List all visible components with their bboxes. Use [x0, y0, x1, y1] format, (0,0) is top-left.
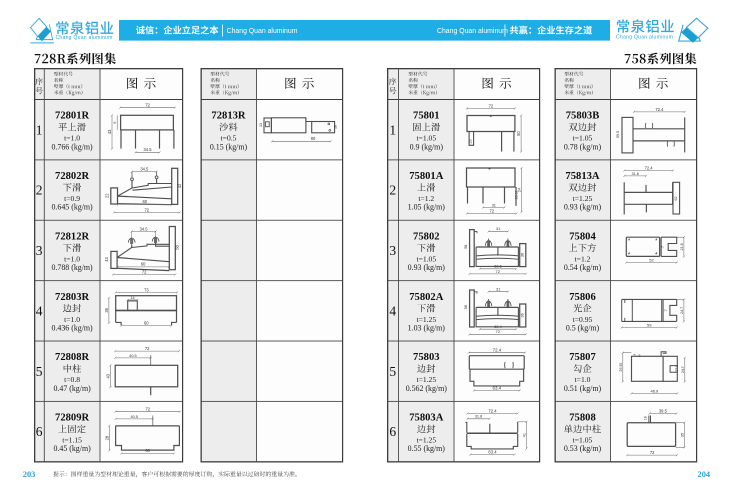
- svg-text:34.5: 34.5: [144, 147, 153, 152]
- svg-text:0.788 (kg/m): 0.788 (kg/m): [51, 263, 93, 272]
- svg-text:59: 59: [647, 322, 652, 327]
- svg-text:0.93 (kg/m): 0.93 (kg/m): [408, 263, 446, 272]
- svg-text:4: 4: [36, 303, 43, 318]
- svg-text:1.05 (kg/m): 1.05 (kg/m): [408, 203, 446, 212]
- svg-text:46.9: 46.9: [651, 388, 660, 393]
- svg-text:75808: 75808: [569, 413, 595, 424]
- svg-text:3: 3: [36, 243, 43, 258]
- svg-text:23.02: 23.02: [514, 191, 518, 200]
- svg-text:203: 203: [23, 470, 36, 479]
- svg-text:60: 60: [141, 262, 146, 267]
- svg-text:0.51 (kg/m): 0.51 (kg/m): [564, 384, 602, 393]
- svg-text:43: 43: [105, 373, 110, 378]
- svg-text:60: 60: [143, 199, 148, 204]
- svg-text:43: 43: [104, 257, 109, 262]
- svg-text:21.8: 21.8: [680, 243, 684, 250]
- svg-text:60: 60: [144, 320, 149, 325]
- svg-text:1: 1: [389, 122, 396, 137]
- svg-text:18: 18: [334, 125, 338, 129]
- svg-text:0.436 (kg/m): 0.436 (kg/m): [51, 323, 93, 332]
- svg-text:24.7: 24.7: [680, 307, 684, 314]
- svg-text:Chang Quan aluminum: Chang Quan aluminum: [56, 35, 113, 41]
- svg-text:13: 13: [259, 123, 263, 127]
- svg-text:72812R: 72812R: [55, 232, 89, 243]
- svg-text:29.35: 29.35: [619, 363, 623, 372]
- svg-text:60: 60: [145, 448, 150, 453]
- svg-text:63.4: 63.4: [488, 450, 497, 455]
- svg-text:42: 42: [177, 183, 182, 188]
- svg-text:36: 36: [521, 313, 525, 317]
- svg-text:0.645 (kg/m): 0.645 (kg/m): [51, 203, 93, 212]
- svg-text:72.4: 72.4: [493, 348, 502, 353]
- svg-text:14: 14: [130, 296, 134, 300]
- svg-text:75801: 75801: [413, 111, 439, 122]
- svg-text:72.4: 72.4: [655, 107, 664, 112]
- svg-text:80: 80: [311, 136, 316, 141]
- svg-text:75803B: 75803B: [566, 111, 600, 122]
- svg-text:7: 7: [661, 246, 665, 248]
- svg-text:72809R: 72809R: [55, 413, 89, 424]
- svg-text:72: 72: [490, 208, 495, 213]
- svg-text:58: 58: [464, 305, 468, 309]
- svg-text:0.54 (kg/m): 0.54 (kg/m): [564, 263, 602, 272]
- svg-text:63.4: 63.4: [493, 385, 502, 390]
- svg-text:2: 2: [389, 183, 396, 198]
- svg-text:72: 72: [496, 269, 500, 274]
- svg-text:75804: 75804: [569, 232, 596, 243]
- svg-text:34.5: 34.5: [140, 167, 149, 172]
- svg-text:31: 31: [496, 287, 500, 292]
- svg-text:34.5: 34.5: [140, 226, 149, 231]
- svg-text:0.93 (kg/m): 0.93 (kg/m): [564, 203, 602, 212]
- svg-text:72: 72: [145, 207, 150, 212]
- svg-text:62: 62: [674, 197, 678, 201]
- svg-text:40.5: 40.5: [131, 415, 138, 419]
- svg-text:2: 2: [36, 183, 43, 198]
- svg-text:72: 72: [650, 450, 655, 455]
- svg-text:31: 31: [492, 202, 496, 207]
- svg-text:6: 6: [36, 424, 43, 439]
- svg-text:5: 5: [634, 354, 636, 358]
- svg-text:72803R: 72803R: [55, 292, 89, 303]
- svg-text:204: 204: [698, 470, 711, 479]
- svg-text:75803: 75803: [413, 352, 439, 363]
- svg-text:36: 36: [104, 307, 109, 312]
- svg-text:0.45 (kg/m): 0.45 (kg/m): [53, 444, 91, 453]
- svg-text:72.4: 72.4: [488, 408, 497, 413]
- svg-text:75801A: 75801A: [409, 171, 443, 182]
- svg-text:Chang Quan aluminum: Chang Quan aluminum: [437, 28, 508, 35]
- svg-text:6: 6: [113, 122, 117, 124]
- svg-text:75802A: 75802A: [409, 292, 443, 303]
- svg-text:31.8: 31.8: [632, 172, 639, 176]
- svg-text:35: 35: [680, 433, 684, 437]
- svg-text:1.03 (kg/m): 1.03 (kg/m): [408, 323, 446, 332]
- svg-text:72: 72: [145, 346, 150, 351]
- svg-text:7: 7: [664, 309, 668, 311]
- svg-text:72808R: 72808R: [55, 352, 89, 363]
- svg-text:28: 28: [104, 435, 109, 440]
- svg-text:31.8: 31.8: [475, 415, 482, 419]
- svg-text:Chang Quan aluminum: Chang Quan aluminum: [616, 34, 673, 40]
- svg-text:58: 58: [464, 245, 468, 249]
- svg-text:0.5 (kg/m): 0.5 (kg/m): [566, 323, 600, 332]
- svg-text:27.8: 27.8: [675, 365, 679, 372]
- svg-text:72: 72: [145, 103, 150, 108]
- svg-text:36: 36: [521, 253, 525, 257]
- svg-text:18: 18: [644, 416, 648, 420]
- svg-text:39.5: 39.5: [659, 408, 668, 413]
- svg-text:58: 58: [175, 245, 180, 250]
- svg-text:75803A: 75803A: [409, 413, 443, 424]
- svg-text:0.47 (kg/m): 0.47 (kg/m): [53, 384, 91, 393]
- svg-text:72.4: 72.4: [645, 165, 654, 170]
- svg-text:72: 72: [146, 407, 151, 412]
- svg-text:52: 52: [649, 257, 654, 262]
- svg-text:4: 4: [389, 303, 396, 318]
- svg-text:6: 6: [389, 424, 396, 439]
- svg-text:75802: 75802: [413, 232, 439, 243]
- svg-text:31: 31: [496, 226, 500, 231]
- svg-text:0.53 (kg/m): 0.53 (kg/m): [564, 444, 602, 453]
- svg-text:24.7: 24.7: [681, 366, 685, 373]
- svg-text:59.5: 59.5: [616, 131, 620, 138]
- svg-text:0.55 (kg/m): 0.55 (kg/m): [408, 444, 446, 453]
- svg-text:5: 5: [389, 364, 396, 379]
- svg-text:72802R: 72802R: [55, 171, 89, 182]
- svg-text:75813A: 75813A: [565, 171, 599, 182]
- svg-text:41: 41: [523, 433, 527, 437]
- svg-text:72: 72: [496, 329, 500, 334]
- svg-text:50: 50: [516, 131, 521, 136]
- svg-text:0.562 (kg/m): 0.562 (kg/m): [406, 384, 448, 393]
- svg-text:72813R: 72813R: [211, 111, 245, 122]
- svg-text:0.9 (kg/m): 0.9 (kg/m): [410, 142, 444, 151]
- svg-text:23: 23: [468, 139, 472, 143]
- svg-text:0.766 (kg/m): 0.766 (kg/m): [51, 142, 93, 151]
- svg-text:0.78 (kg/m): 0.78 (kg/m): [564, 142, 602, 151]
- svg-text:73: 73: [144, 287, 149, 292]
- svg-text:22: 22: [105, 193, 110, 198]
- svg-text:72: 72: [142, 269, 147, 274]
- svg-text:0.15 (kg/m): 0.15 (kg/m): [210, 142, 248, 151]
- svg-text:72801R: 72801R: [55, 111, 89, 122]
- svg-text:1: 1: [36, 122, 43, 137]
- svg-text:5: 5: [36, 364, 43, 379]
- svg-text:40.5: 40.5: [129, 354, 136, 358]
- svg-text:72: 72: [489, 103, 494, 108]
- svg-text:75807: 75807: [569, 352, 596, 363]
- svg-text:43: 43: [107, 129, 112, 134]
- svg-text:75806: 75806: [569, 292, 595, 303]
- svg-text:Chang Quan aluminum: Chang Quan aluminum: [227, 28, 298, 35]
- svg-text:3: 3: [389, 243, 396, 258]
